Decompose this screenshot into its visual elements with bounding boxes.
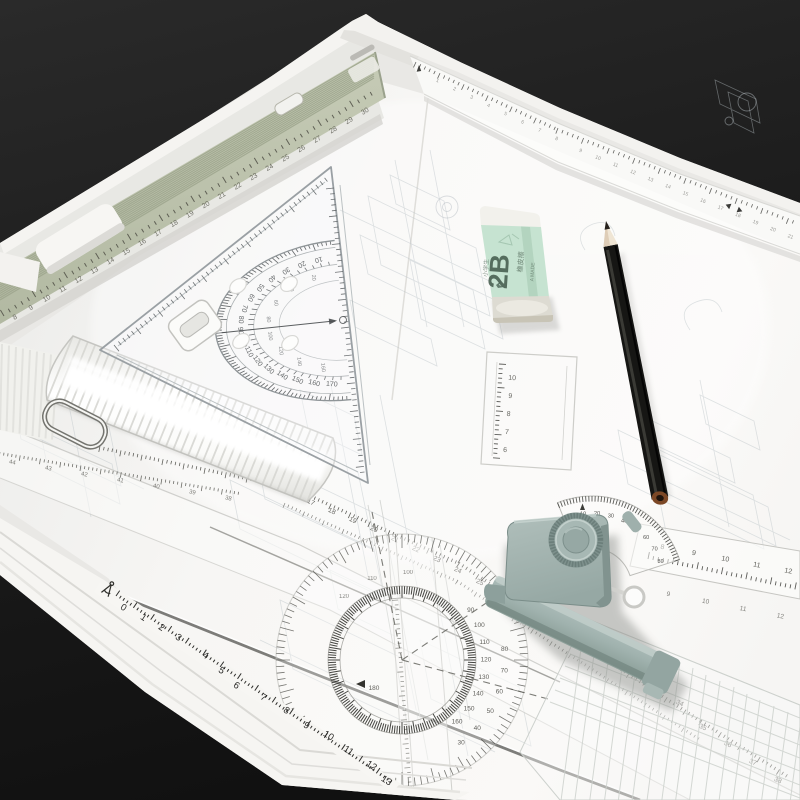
svg-text:6: 6 bbox=[503, 447, 507, 454]
svg-text:160: 160 bbox=[452, 718, 463, 725]
svg-text:30: 30 bbox=[608, 514, 614, 520]
svg-text:170: 170 bbox=[326, 381, 338, 389]
svg-text:60: 60 bbox=[643, 535, 649, 541]
svg-text:9: 9 bbox=[508, 393, 512, 400]
svg-text:80: 80 bbox=[658, 559, 664, 565]
svg-text:12: 12 bbox=[784, 567, 793, 575]
svg-text:150: 150 bbox=[464, 706, 475, 713]
svg-text:140: 140 bbox=[295, 357, 302, 367]
svg-text:80: 80 bbox=[265, 316, 272, 323]
svg-text:80: 80 bbox=[237, 315, 245, 323]
svg-text:130: 130 bbox=[478, 674, 489, 681]
svg-text:100: 100 bbox=[403, 570, 414, 576]
svg-text:8: 8 bbox=[506, 411, 510, 418]
svg-text:7: 7 bbox=[505, 429, 509, 436]
svg-text:110: 110 bbox=[479, 639, 490, 646]
svg-text:80: 80 bbox=[501, 646, 509, 653]
svg-text:100: 100 bbox=[266, 331, 273, 341]
svg-text:10: 10 bbox=[721, 555, 730, 563]
svg-text:10: 10 bbox=[508, 375, 516, 383]
svg-text:30: 30 bbox=[457, 739, 465, 746]
svg-text:60: 60 bbox=[496, 689, 504, 696]
svg-text:100: 100 bbox=[474, 622, 485, 629]
svg-text:60: 60 bbox=[272, 300, 279, 307]
svg-text:40: 40 bbox=[474, 725, 482, 732]
svg-text:20: 20 bbox=[310, 274, 317, 281]
svg-text:50: 50 bbox=[487, 708, 495, 715]
svg-text:90: 90 bbox=[467, 607, 475, 614]
svg-text:11: 11 bbox=[753, 561, 762, 569]
svg-text:70: 70 bbox=[501, 668, 509, 675]
svg-text:110: 110 bbox=[367, 576, 377, 582]
svg-text:70: 70 bbox=[652, 546, 658, 552]
svg-text:120: 120 bbox=[339, 594, 350, 600]
svg-text:180: 180 bbox=[369, 685, 380, 692]
svg-text:160: 160 bbox=[319, 363, 326, 373]
svg-text:120: 120 bbox=[481, 657, 492, 664]
svg-text:140: 140 bbox=[473, 691, 484, 698]
